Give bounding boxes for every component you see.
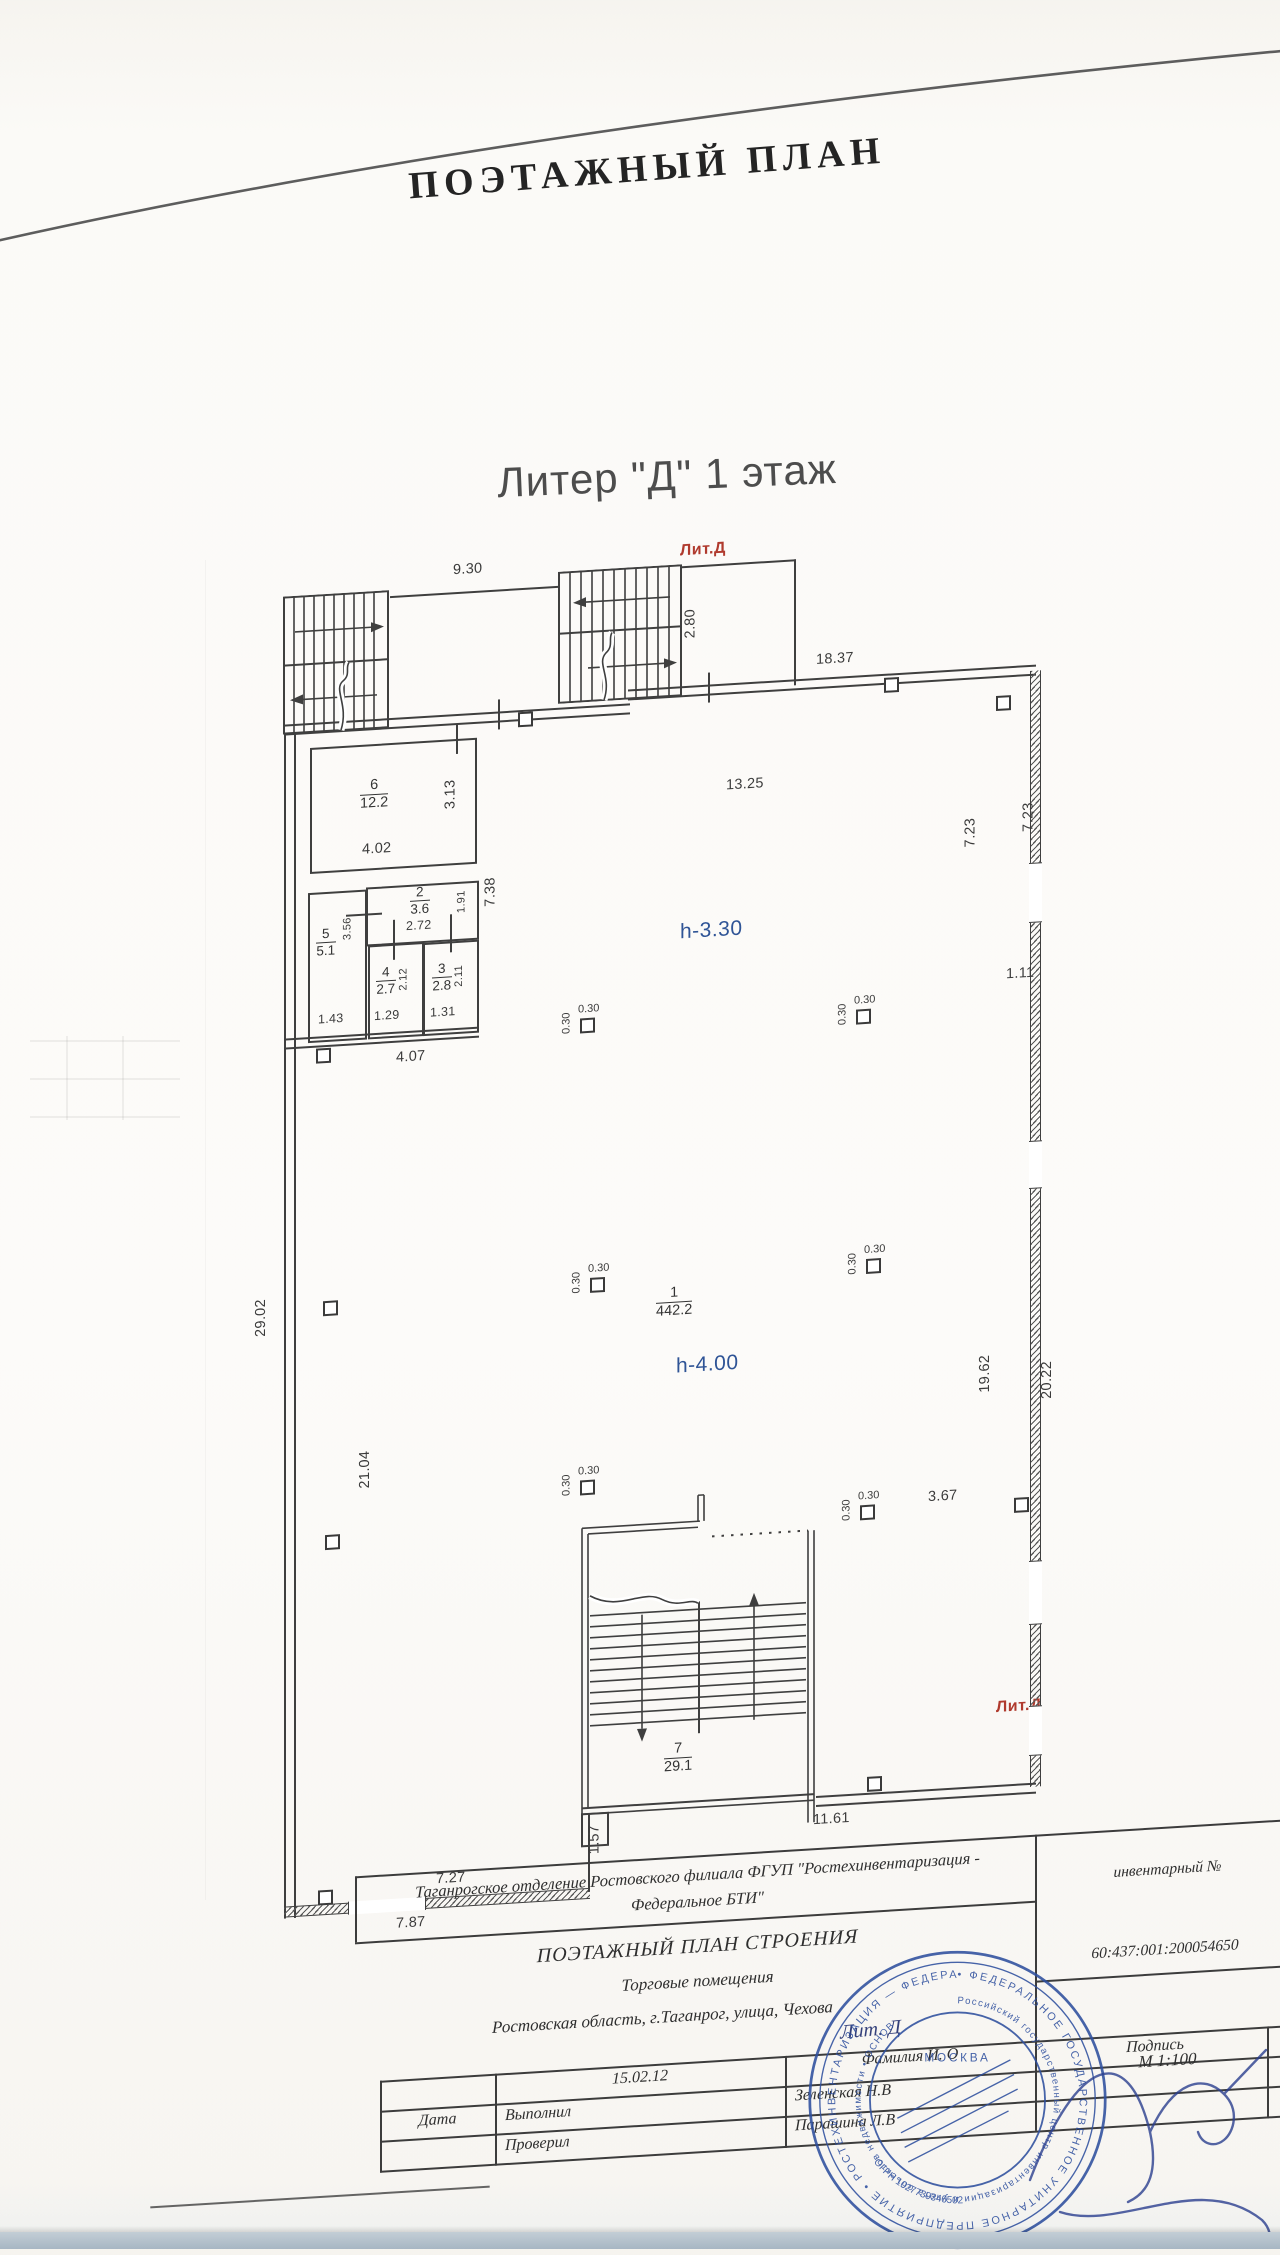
wall-top	[628, 665, 1036, 701]
dim-room3-w: 1.31	[430, 1004, 456, 1020]
room-label-3: 3 2.8	[432, 960, 452, 993]
window-opening	[1029, 862, 1042, 923]
dim-room2-h: 1.91	[455, 890, 467, 913]
room-label-7: 7 29.1	[664, 1740, 692, 1776]
door-tick	[393, 920, 395, 960]
room-area: 2.8	[432, 977, 451, 993]
door-tick	[450, 914, 452, 952]
wall-left	[284, 733, 296, 1919]
room-area: 12.2	[360, 794, 388, 812]
room-area: 442.2	[656, 1301, 692, 1319]
scanner-edge-shadow	[0, 2226, 1280, 2232]
staircase-top-right	[558, 564, 682, 704]
column-marker	[1014, 1497, 1029, 1513]
room-area: 29.1	[664, 1757, 692, 1775]
window-opening	[1029, 1560, 1042, 1625]
column-marker: 0.30 0.30	[856, 1009, 871, 1025]
dim-room6-w: 4.02	[362, 840, 391, 858]
staircase-top-left	[283, 590, 389, 734]
scan-artifact	[30, 1040, 180, 1042]
stamp-city: МОСКВА	[924, 2051, 990, 2065]
dim-top-stairs: 9.30	[453, 560, 482, 578]
dim-right-step: 1.11	[1006, 965, 1034, 983]
window-opening	[1029, 1140, 1042, 1189]
column-dim: 0.30	[847, 1253, 859, 1275]
column-dim: 0.30	[561, 1012, 573, 1034]
column-dim: 0.30	[864, 1243, 885, 1256]
room-number: 3	[432, 960, 452, 978]
column-marker	[323, 1300, 338, 1316]
dim-left-total: 29.02	[253, 1299, 269, 1338]
column-dim: 0.30	[841, 1499, 853, 1521]
dim-room5-w: 1.43	[318, 1011, 344, 1027]
dim-right-upper-out: 7.23	[1021, 802, 1037, 832]
column-dim: 0.30	[858, 1489, 879, 1502]
scan-artifact	[122, 1036, 124, 1120]
plan-subtitle: Литер "Д" 1 этаж	[496, 445, 838, 507]
wall	[680, 559, 796, 568]
dim-hall-width: 13.25	[726, 775, 764, 793]
room-area: 5.1	[316, 942, 335, 958]
dim-room6-h: 3.13	[443, 779, 459, 809]
dim-room5-h: 3.56	[341, 917, 353, 940]
column-dim: 0.30	[588, 1262, 609, 1275]
litera-label-top: Лит.Д	[680, 540, 726, 561]
signature-flourish	[1000, 2020, 1280, 2249]
dim-rooms-bottom: 4.07	[396, 1048, 425, 1066]
column-marker: 0.30 0.30	[580, 1480, 595, 1496]
column-marker	[316, 1048, 331, 1064]
column-dim: 0.30	[837, 1003, 849, 1025]
dim-right-upper-in: 7.23	[963, 817, 979, 847]
height-label-330: h-3.30	[680, 917, 743, 945]
column-marker: 0.30 0.30	[590, 1277, 605, 1293]
staircase-bottom	[580, 1482, 820, 1877]
door-tick	[708, 673, 710, 703]
dim-room4-w: 1.29	[374, 1008, 400, 1024]
dim-room3-h: 2.11	[453, 965, 465, 988]
room-number: 7	[664, 1740, 692, 1759]
window-opening	[1029, 1705, 1042, 1756]
room-number: 2	[410, 884, 430, 902]
column-dim: 0.30	[578, 1002, 599, 1015]
inventory-label: инвентарный №	[1045, 1853, 1280, 1886]
room-number: 5	[316, 925, 336, 943]
column-marker: 0.30 0.30	[860, 1504, 875, 1520]
room-label-6: 6 12.2	[360, 776, 388, 812]
dim-room2-w: 2.72	[406, 918, 432, 934]
room-area: 2.7	[376, 980, 395, 996]
door-tick	[498, 699, 500, 729]
dim-top-wall: 18.37	[816, 650, 854, 668]
room-label-2: 2 3.6	[410, 884, 430, 917]
scanner-edge	[0, 2232, 1280, 2249]
room-area: 3.6	[410, 900, 429, 916]
floor-plan: Лит.Д Лит.Д	[228, 516, 1108, 1990]
dim-stair-depth: 2.80	[683, 608, 699, 638]
column-marker	[996, 695, 1011, 711]
scan-artifact	[205, 560, 206, 1900]
dim-bottom-right: 11.61	[813, 1810, 850, 1828]
dim-right-lower-in: 19.62	[977, 1354, 993, 1393]
wall	[390, 586, 560, 598]
dim-corridor: 7.38	[483, 877, 499, 907]
wall	[794, 559, 796, 685]
wall-bottom-right	[816, 1783, 1036, 1807]
tb-border	[355, 1876, 357, 1942]
column-marker	[518, 711, 533, 727]
dim-col-span: 3.67	[928, 1487, 957, 1505]
column-dim: 0.30	[578, 1464, 599, 1477]
scan-artifact	[30, 1116, 180, 1118]
row-made: Выполнил	[505, 2103, 571, 2125]
door-tick	[456, 724, 458, 754]
scan-artifact	[30, 1078, 180, 1080]
dim-left-lower: 21.04	[357, 1450, 373, 1489]
room-label-1: 1 442.2	[656, 1284, 692, 1321]
room-number: 6	[360, 776, 388, 795]
page-curve	[0, 0, 1280, 280]
room-number: 4	[376, 964, 396, 982]
column-marker	[884, 677, 899, 693]
scan-artifact	[66, 1036, 68, 1120]
room-label-4: 4 2.7	[376, 964, 396, 997]
column-marker	[867, 1776, 882, 1792]
column-marker: 0.30 0.30	[580, 1018, 595, 1034]
column-dim: 0.30	[561, 1474, 573, 1496]
room-number: 1	[656, 1284, 692, 1304]
row-checked: Проверил	[505, 2133, 570, 2155]
dim-room4-h: 2.12	[397, 968, 409, 991]
height-label-400: h-4.00	[676, 1351, 739, 1379]
dim-right-lower-out: 20.22	[1039, 1361, 1055, 1400]
column-dim: 0.30	[854, 993, 875, 1006]
column-dim: 0.30	[571, 1272, 583, 1294]
wall-right	[1030, 670, 1041, 1787]
column-marker	[325, 1534, 340, 1550]
column-marker: 0.30 0.30	[866, 1258, 881, 1274]
room-label-5: 5 5.1	[316, 925, 336, 958]
